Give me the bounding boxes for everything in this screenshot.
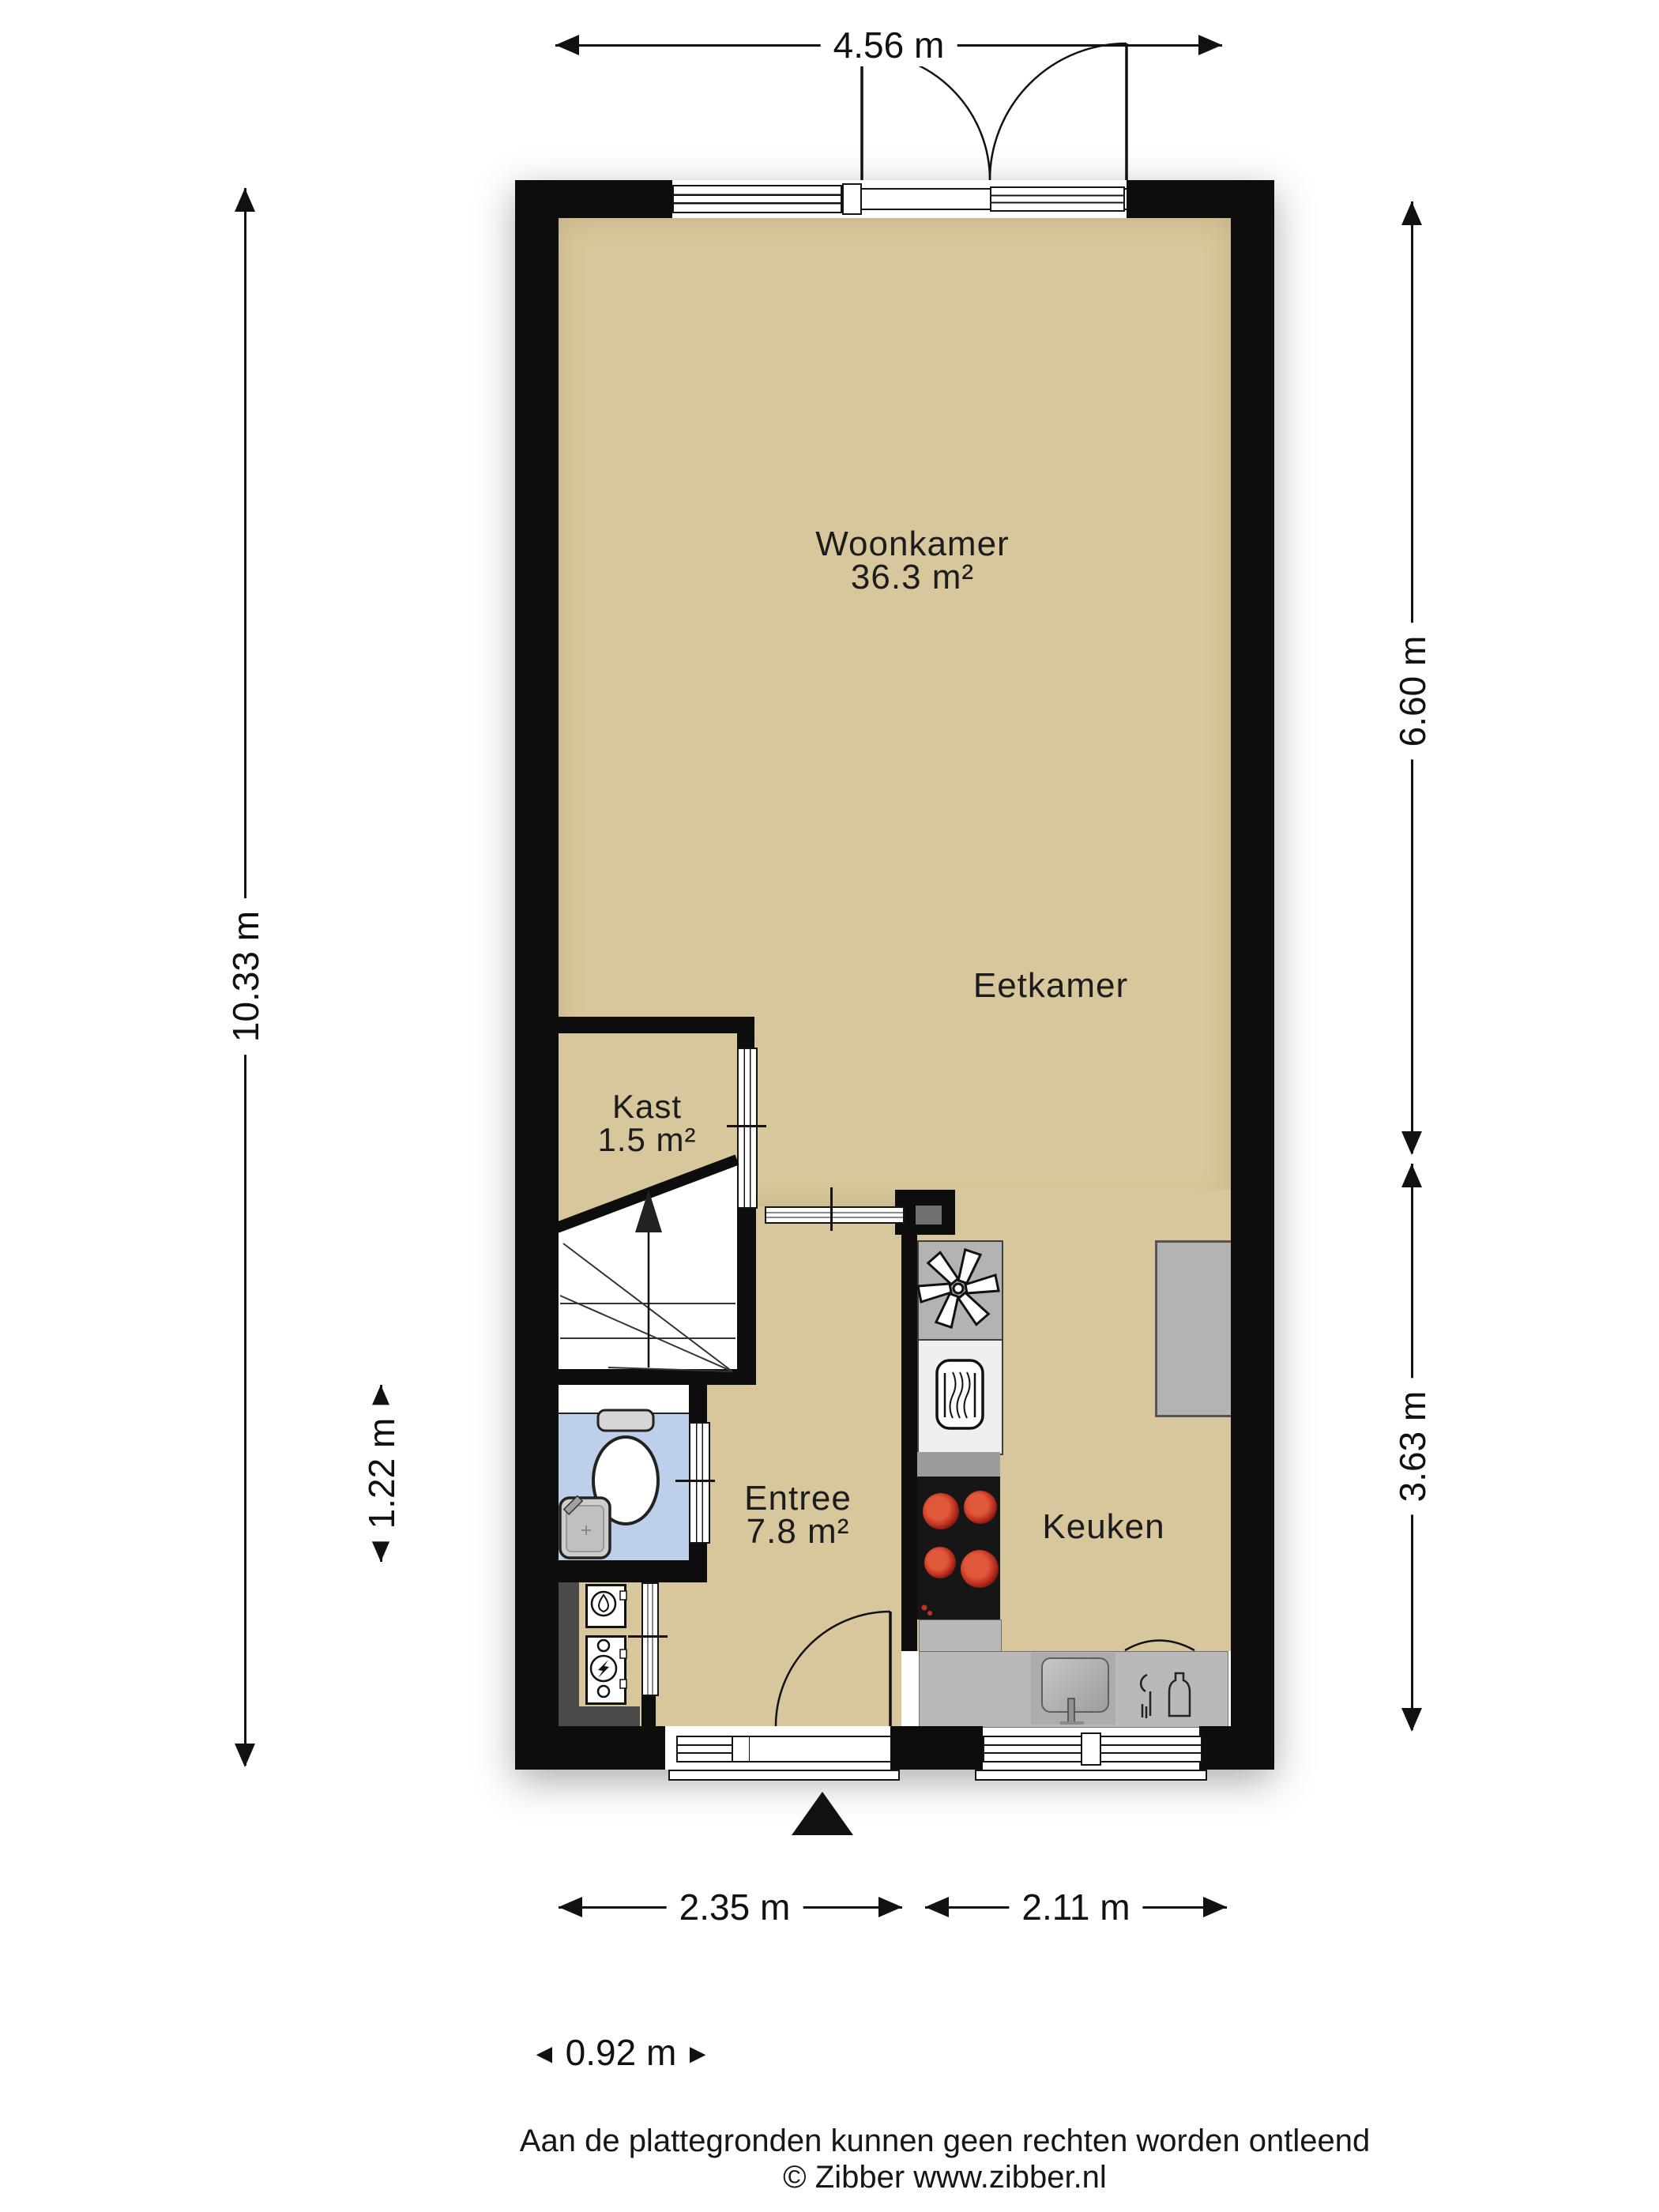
dim-label-bottom-right: 2.11 m [1009, 1886, 1142, 1928]
front-door-threshold [750, 1736, 890, 1762]
dim-arrowhead-left-icon: ◄ [523, 2039, 566, 2069]
dim-arrow-b1-right-icon [878, 1897, 902, 1917]
toilet-floor [559, 1414, 689, 1560]
burner-1 [923, 1493, 959, 1529]
room-area-entree: 7.8 m² [747, 1512, 850, 1552]
water-heater-box [585, 1584, 626, 1628]
french-door-fixed-glass [990, 186, 1125, 212]
dim-label-bottom-left: 2.35 m [667, 1886, 803, 1928]
wall-bottom-right [1199, 1726, 1274, 1770]
window-post-top [842, 183, 862, 215]
glass-tick-4 [830, 1187, 833, 1231]
room-label-keuken: Keuken [1042, 1507, 1164, 1547]
dim-label-top: 4.56 m [821, 24, 957, 66]
wall-toilet-east-upper [689, 1385, 707, 1422]
window-sill-right [975, 1770, 1207, 1781]
wall-stairs-bottom [559, 1369, 754, 1385]
dim-arrow-b2-right-icon [1203, 1897, 1227, 1917]
window-mullion-kitchen [1081, 1732, 1101, 1766]
dim-label-right-upper: 6.60 m [1391, 623, 1434, 760]
dim-arrow-top-left-icon [555, 35, 579, 55]
burner-3 [924, 1547, 956, 1578]
wall-kitchen [901, 1235, 917, 1651]
footer-copyright: © Zibber www.zibber.nl [783, 2160, 1107, 2195]
window-sill-left [668, 1770, 900, 1781]
window-post-bottom-left [732, 1736, 750, 1762]
dim-arrow-r1-down-icon [1401, 1131, 1422, 1155]
wall-left [515, 180, 559, 1770]
room-label-eetkamer: Eetkamer [973, 966, 1128, 1006]
meter-closet-lining-bottom [559, 1706, 640, 1726]
glass-toilet-partition [689, 1422, 710, 1544]
dim-arrow-left-down-icon [235, 1744, 255, 1767]
sink-icon [1041, 1657, 1109, 1713]
dim-arrow-left-up-icon [235, 188, 255, 212]
dim-arrow-r1-up-icon [1401, 201, 1422, 225]
footer-disclaimer: Aan de plattegronden kunnen geen rechten… [520, 2124, 1370, 2159]
toilet-door-opening [559, 1385, 689, 1414]
dim-arrowhead-right-icon: ► [676, 2039, 719, 2069]
wall-toilet-bottom [515, 1560, 707, 1582]
dim-arrow-r2-up-icon [1401, 1164, 1422, 1187]
floor-entree-west [656, 1582, 707, 1726]
wall-right [1231, 180, 1274, 1770]
window-top [672, 185, 842, 213]
room-area-kast: 1.5 m² [597, 1121, 696, 1159]
counter-strip [917, 1452, 1000, 1477]
glass-tick-1 [727, 1125, 766, 1127]
wall-stairs-east-lower [737, 1206, 756, 1385]
meter-closet-lining-left [559, 1582, 579, 1726]
kitchen-cabinet [1155, 1240, 1234, 1417]
duct-square [916, 1206, 942, 1224]
electric-meter-box [585, 1635, 626, 1705]
wall-kast-top [556, 1017, 754, 1033]
entrance-arrow-icon [792, 1792, 853, 1835]
dim-arrow-toilet-down-icon [371, 1538, 391, 1562]
dim-arrow-b1-left-icon [559, 1897, 582, 1917]
dim-label-bottom-small: ◄0.92 m► [523, 2031, 719, 2074]
burner-2 [964, 1491, 997, 1524]
wall-meterkast-east [641, 1693, 656, 1726]
glass-tick-2 [675, 1480, 715, 1482]
burner-4 [961, 1550, 999, 1588]
window-bottom-left [676, 1736, 733, 1762]
floor-keuken-top [955, 1190, 1231, 1237]
room-area-woonkamer: 36.3 m² [851, 558, 974, 597]
dim-arrow-top-right-icon [1198, 35, 1222, 55]
dim-label-right-lower: 3.63 m [1391, 1379, 1434, 1515]
dim-arrow-r2-down-icon [1401, 1708, 1422, 1732]
glass-meterkast-partition [641, 1582, 659, 1696]
floorplan-page: Woonkamer 36.3 m² Eetkamer Kast 1.5 m² E… [0, 0, 1659, 2212]
dim-small-value: 0.92 m [566, 2032, 677, 2073]
glass-kast-partition [737, 1048, 758, 1209]
wall-bottom-mid [890, 1726, 983, 1770]
glass-entree-partition [765, 1206, 905, 1224]
dim-arrow-b2-left-icon [925, 1897, 949, 1917]
wall-stairs-east-upper [737, 1033, 754, 1048]
wall-bottom-left [515, 1726, 665, 1770]
dim-label-left-toilet: 1.22 m [360, 1405, 403, 1542]
glass-tick-3 [628, 1635, 668, 1638]
room-label-kast: Kast [612, 1088, 682, 1126]
oven-unit [917, 1339, 1003, 1455]
extractor-unit [917, 1240, 1003, 1341]
dim-label-left: 10.33 m [224, 898, 267, 1055]
